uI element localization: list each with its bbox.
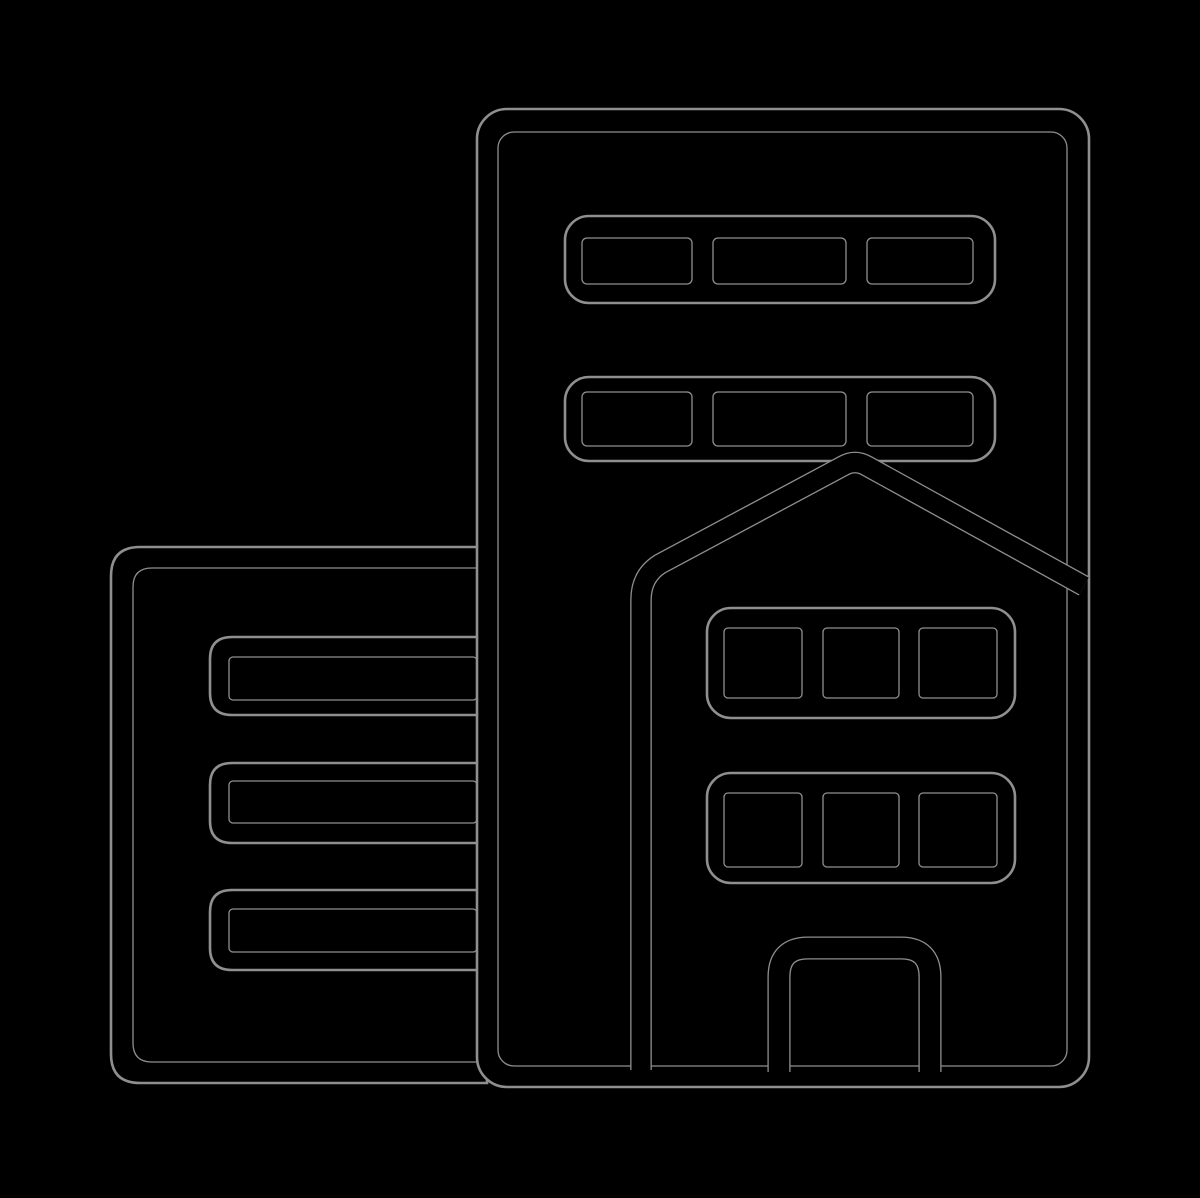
house-row-lower-pane-2 — [823, 793, 899, 867]
tower-window-band-lower — [565, 377, 995, 461]
tower-window-band-upper — [565, 216, 995, 303]
house-row-upper-pane-2 — [823, 628, 899, 698]
house-window-row-upper — [707, 608, 1015, 718]
tower-building — [477, 109, 1089, 1087]
tower-band-lower-pane-3 — [867, 392, 973, 446]
annex-window-bar-middle — [210, 763, 487, 843]
annex-window-bar-bottom — [210, 890, 487, 970]
tower-band-upper-pane-2 — [713, 238, 846, 284]
house-row-upper-pane-1 — [724, 628, 802, 698]
annex-window-bar-top-pane — [229, 657, 477, 700]
tower-band-lower-pane-2 — [713, 392, 846, 446]
annex-window-bar-bottom-pane — [229, 909, 477, 952]
house-row-lower-pane-3 — [919, 793, 997, 867]
icon-canvas: City buildings icon — [0, 0, 1200, 1198]
annex-building — [111, 547, 487, 1083]
tower-band-upper-pane-1 — [582, 238, 692, 284]
city-buildings-icon: City buildings icon — [0, 0, 1200, 1198]
annex-window-bar-top — [210, 637, 487, 715]
house-row-lower-pane-1 — [724, 793, 802, 867]
tower-band-lower-pane-1 — [582, 392, 692, 446]
annex-window-bar-middle-pane — [229, 781, 477, 823]
house-window-row-lower — [707, 773, 1015, 883]
house-row-upper-pane-3 — [919, 628, 997, 698]
tower-band-upper-pane-3 — [867, 238, 973, 284]
